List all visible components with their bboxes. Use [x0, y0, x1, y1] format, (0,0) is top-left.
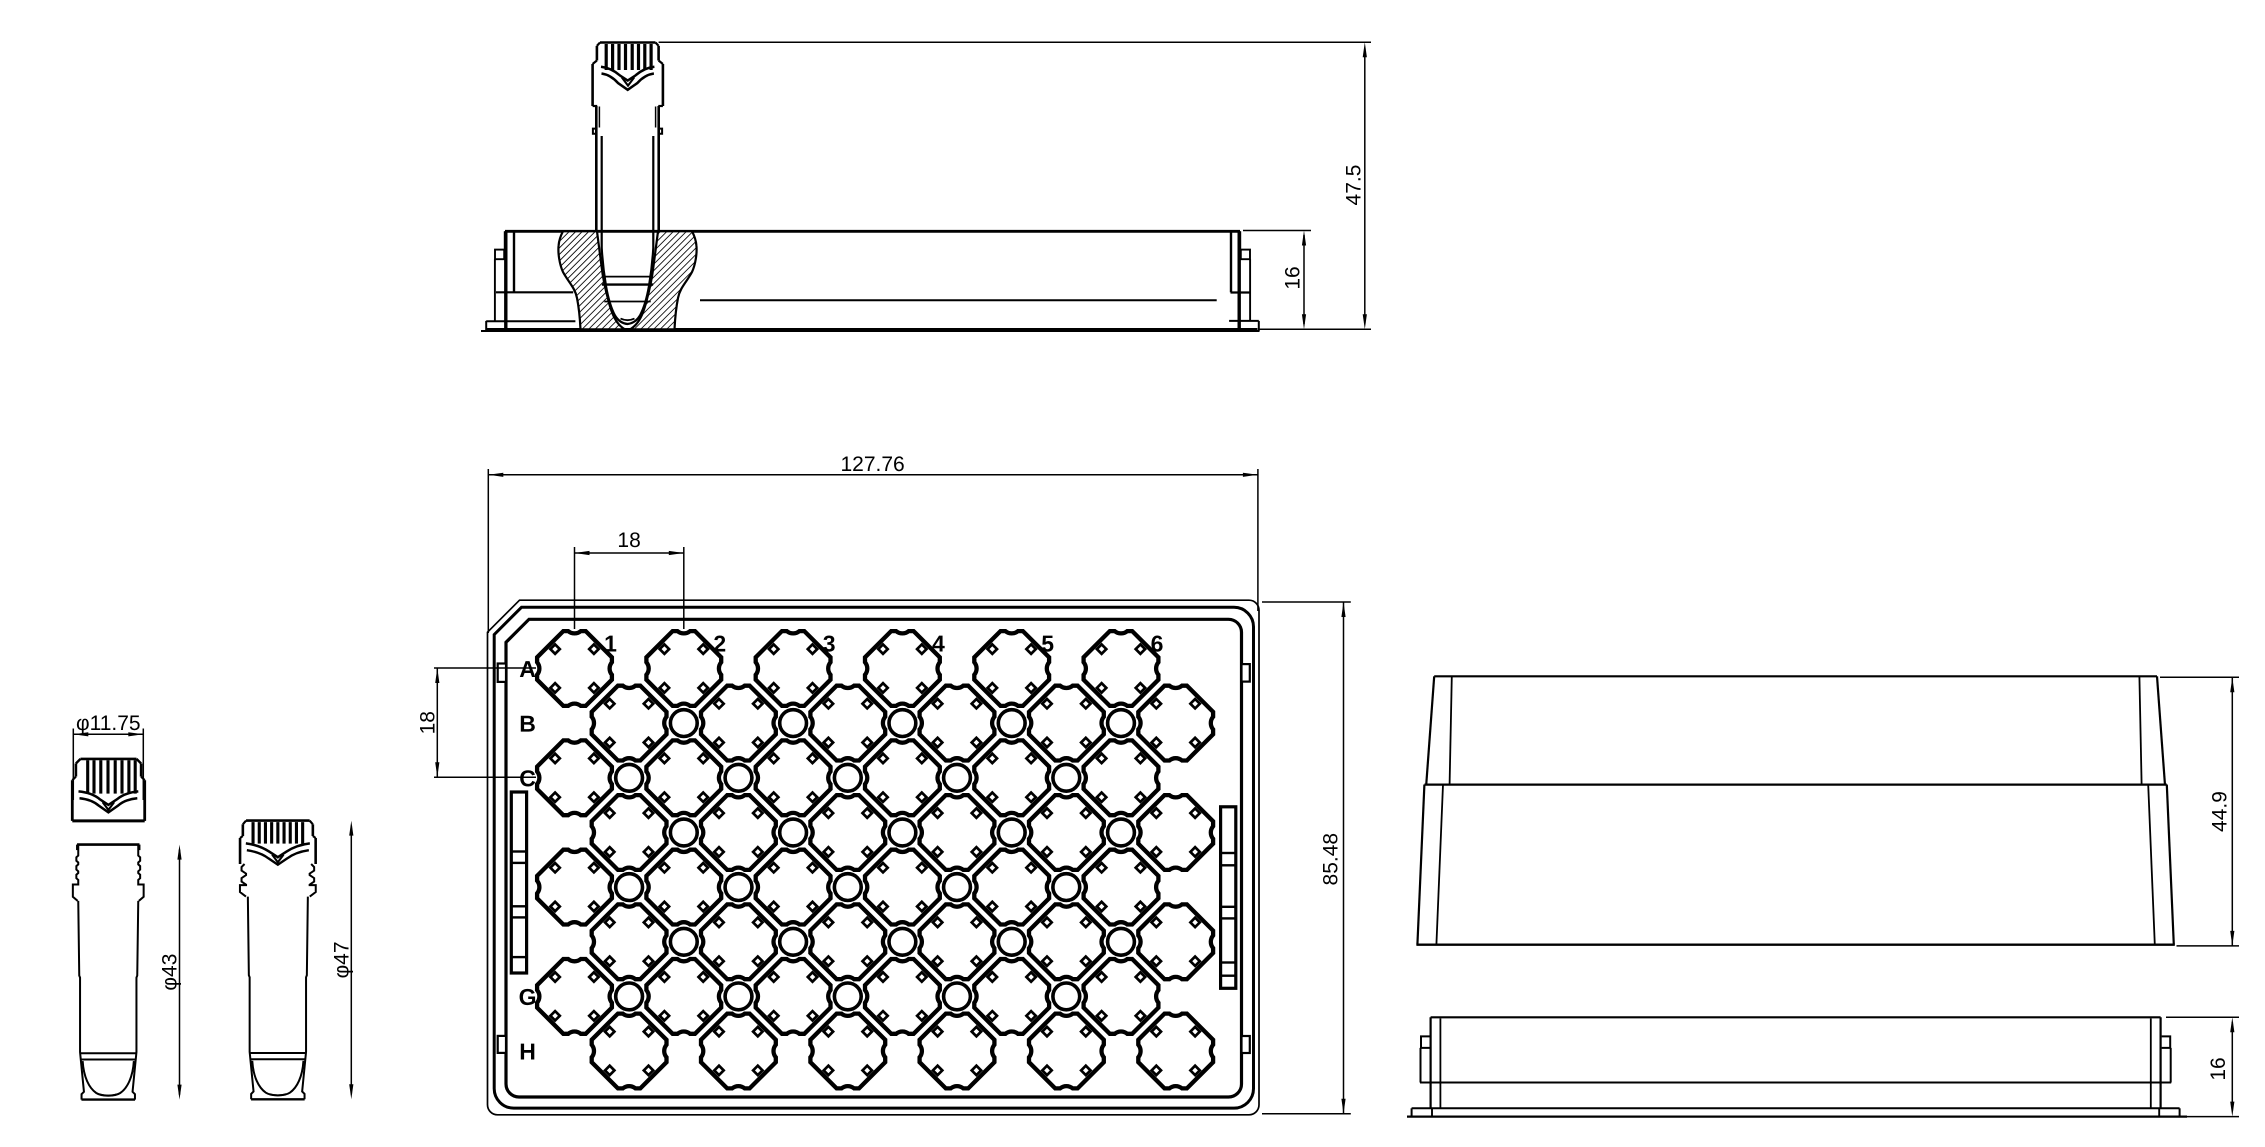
svg-text:B: B — [519, 711, 536, 737]
svg-text:18: 18 — [617, 529, 640, 552]
svg-text:44.9: 44.9 — [2208, 791, 2231, 832]
svg-text:C: C — [519, 765, 536, 791]
svg-text:H: H — [519, 1039, 536, 1065]
svg-text:6: 6 — [1151, 630, 1164, 656]
svg-text:1: 1 — [604, 630, 617, 656]
svg-text:16: 16 — [1282, 266, 1305, 289]
svg-text:5: 5 — [1041, 630, 1054, 656]
svg-text:16: 16 — [2207, 1057, 2230, 1080]
svg-text:18: 18 — [416, 711, 439, 734]
svg-text:4: 4 — [932, 630, 945, 656]
svg-text:2: 2 — [713, 630, 726, 656]
svg-text:85.48: 85.48 — [1319, 833, 1342, 886]
svg-text:A: A — [519, 656, 536, 682]
svg-text:3: 3 — [823, 630, 836, 656]
svg-text:φ47: φ47 — [330, 941, 353, 978]
svg-text:G: G — [519, 984, 537, 1010]
svg-text:φ43: φ43 — [159, 954, 182, 991]
svg-text:47.5: 47.5 — [1343, 165, 1366, 206]
svg-text:127.76: 127.76 — [840, 453, 904, 476]
svg-text:φ11.75: φ11.75 — [76, 712, 141, 735]
